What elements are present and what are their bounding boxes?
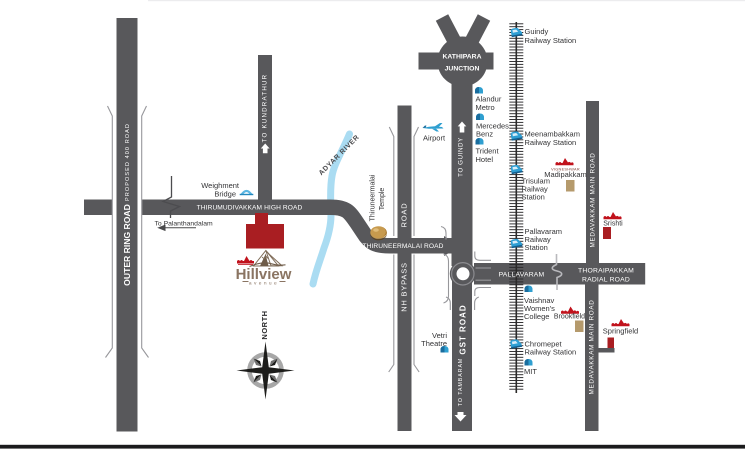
svg-text:THIRUMUDIVAKKAM HIGH ROAD: THIRUMUDIVAKKAM HIGH ROAD [197,205,303,212]
svg-text:Theatre: Theatre [421,339,447,348]
svg-text:GST ROAD: GST ROAD [459,304,468,354]
svg-text:Airport: Airport [423,134,446,143]
svg-text:Railway Station: Railway Station [525,138,577,147]
svg-text:Hotel: Hotel [476,155,494,164]
svg-text:NORTH: NORTH [260,310,269,339]
svg-text:VIGNESHWAR: VIGNESHWAR [551,168,580,172]
svg-text:Railway Station: Railway Station [525,36,577,45]
svg-text:PALLAVARAM: PALLAVARAM [499,272,545,279]
svg-text:Railway Station: Railway Station [525,348,577,357]
svg-text:MEDAVAKKAM MAIN ROAD: MEDAVAKKAM MAIN ROAD [589,300,596,395]
svg-text:Springfield: Springfield [603,327,638,336]
svg-text:TO GUINDY: TO GUINDY [458,137,465,177]
svg-text:MEDAVAKKAM MAIN ROAD: MEDAVAKKAM MAIN ROAD [590,153,597,248]
svg-text:Thiruneermalai: Thiruneermalai [370,174,377,221]
svg-text:To Palanthandalam: To Palanthandalam [155,221,214,228]
svg-text:Guindy: Guindy [525,27,549,36]
svg-text:Metro: Metro [476,103,495,112]
svg-text:KATHIPARA: KATHIPARA [442,54,481,61]
svg-text:avenue: avenue [249,281,279,286]
svg-text:Bridge: Bridge [214,190,236,199]
svg-text:TO KUNDRATHUR: TO KUNDRATHUR [261,74,268,143]
svg-text:THIRUNEERMALAI ROAD: THIRUNEERMALAI ROAD [362,243,443,250]
svg-text:Benz: Benz [476,130,493,139]
svg-text:THORAIPAKKAM: THORAIPAKKAM [578,267,634,274]
svg-text:OUTER RING ROAD: OUTER RING ROAD [122,204,132,286]
svg-text:Srishti: Srishti [603,221,623,228]
svg-text:RADIAL ROAD: RADIAL ROAD [582,276,630,283]
svg-text:College: College [524,312,549,321]
svg-text:ROAD: ROAD [400,203,409,228]
svg-text:Brookfield: Brookfield [554,314,585,321]
svg-text:Temple: Temple [379,188,386,211]
svg-text:Station: Station [522,193,545,202]
svg-text:Station: Station [525,243,548,252]
svg-text:MIT: MIT [524,367,537,376]
svg-text:NH BYPASS: NH BYPASS [400,262,409,312]
svg-text:PROPOSED 400 ROAD: PROPOSED 400 ROAD [125,123,131,201]
svg-text:JUNCTION: JUNCTION [445,66,480,73]
svg-text:TO TAMBARAM: TO TAMBARAM [458,358,464,406]
